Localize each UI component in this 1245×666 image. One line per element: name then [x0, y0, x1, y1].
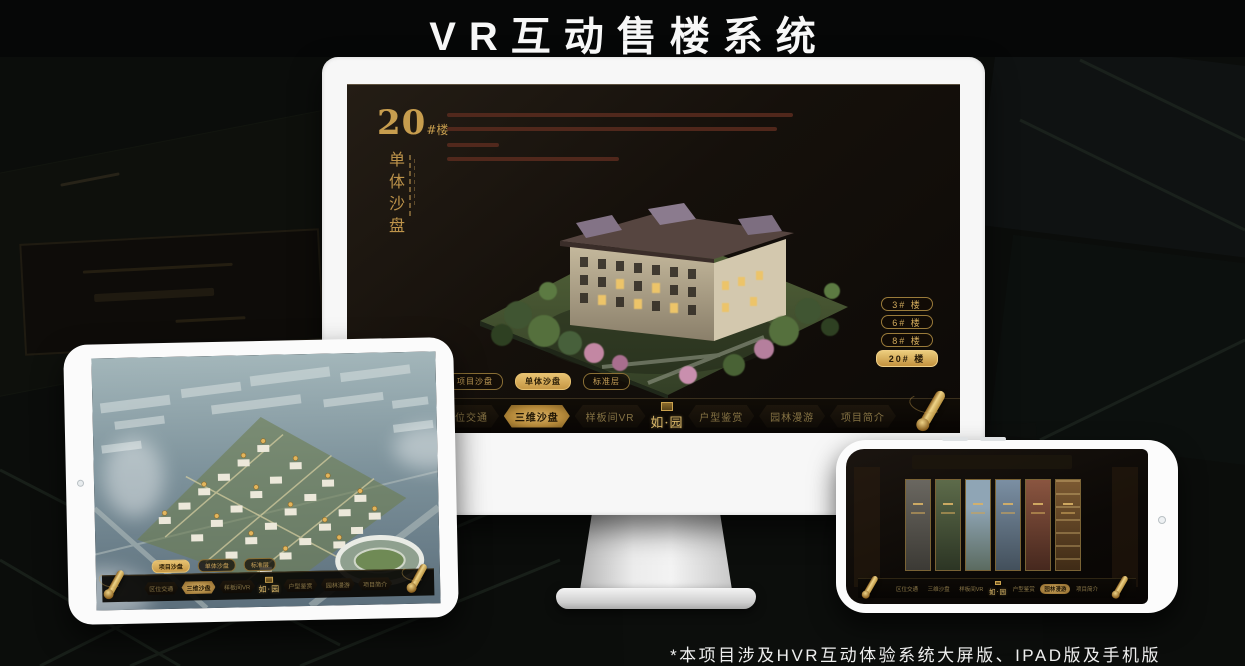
nav-item-floorplan-gallery[interactable]: 户型鉴赏 [1009, 584, 1039, 594]
nav-item-garden-roam[interactable]: 园林漫游 [321, 578, 355, 592]
stage: VR互动售楼系统 *本项目涉及HVR互动体验系统大屏版、IPAD版及手机版 20… [0, 0, 1245, 666]
monitor-stand-neck [580, 512, 732, 590]
subtab-standard-floor[interactable]: 标准层 [583, 373, 630, 390]
phone-nav-bar: 区位交通 三维沙盘 样板间VR 如·园 户型鉴赏 园林漫游 项目简介 [858, 578, 1136, 598]
gallery-panel[interactable] [1025, 479, 1051, 571]
app-logo-text: 如·园 [259, 584, 281, 595]
nav-item-project-intro[interactable]: 项目简介 [1072, 584, 1102, 594]
intro-text-line [447, 113, 793, 117]
phone-volume-button [980, 437, 1006, 441]
tablet-camera-icon [77, 480, 84, 487]
building-button-6[interactable]: 6# 楼 [881, 315, 933, 329]
pergola-backdrop [912, 455, 1072, 469]
gallery-panel[interactable] [935, 479, 961, 571]
gallery-panel[interactable] [905, 479, 931, 571]
gallery-panel[interactable] [995, 479, 1021, 571]
nav-item-3d-sandtable[interactable]: 三维沙盘 [504, 405, 570, 428]
nav-item-garden-roam[interactable]: 园林漫游 [1040, 584, 1070, 594]
nav-item-showroom-vr[interactable]: 样板间VR [219, 580, 256, 594]
page-title: VR互动售楼系统 [0, 4, 1245, 62]
phone-volume-button [942, 437, 968, 441]
heading-english-trace [409, 155, 411, 219]
tablet-subtabs: 项目沙盘 单体沙盘 标准层 [152, 558, 276, 574]
doorframe-backdrop [1112, 467, 1138, 587]
monitor-subtabs: 项目沙盘 单体沙盘 标准层 [447, 373, 630, 390]
subtab-standard-floor[interactable]: 标准层 [244, 558, 276, 572]
heading-english-trace [414, 159, 415, 207]
footnote-text: *本项目涉及HVR互动体验系统大屏版、IPAD版及手机版 [670, 641, 1161, 666]
tablet-device: 项目沙盘 单体沙盘 标准层 区位交通 三维沙盘 样板间VR 如·园 户型鉴赏 园… [63, 337, 459, 625]
nav-item-showroom-vr[interactable]: 样板间VR [955, 584, 987, 594]
nav-item-showroom-vr[interactable]: 样板间VR [575, 405, 646, 428]
subtab-single-sandtable[interactable]: 单体沙盘 [515, 373, 571, 390]
app-logo-text: 如·园 [989, 586, 1007, 596]
subtab-single-sandtable[interactable]: 单体沙盘 [198, 559, 236, 573]
building-heading: 20#楼 [377, 103, 448, 143]
nav-item-floorplan-gallery[interactable]: 户型鉴赏 [283, 578, 317, 592]
subtab-project-sandtable[interactable]: 项目沙盘 [447, 373, 503, 390]
subtab-project-sandtable[interactable]: 项目沙盘 [152, 560, 190, 574]
nav-item-garden-roam[interactable]: 园林漫游 [759, 405, 825, 428]
building-heading-caption: 单体沙盘 [383, 151, 407, 239]
nav-item-project-intro[interactable]: 项目简介 [830, 405, 896, 428]
building-3d-render [452, 131, 862, 399]
nav-item-project-intro[interactable]: 项目简介 [358, 577, 392, 591]
monitor-stand-base [556, 588, 756, 609]
nav-item-floorplan-gallery[interactable]: 户型鉴赏 [688, 405, 754, 428]
nav-item-3d-sandtable[interactable]: 三维沙盘 [181, 580, 215, 594]
building-button-3[interactable]: 3# 楼 [881, 297, 933, 311]
nav-item-3d-sandtable[interactable]: 三维沙盘 [924, 584, 954, 594]
building-button-8[interactable]: 8# 楼 [881, 333, 933, 347]
gallery-panel[interactable] [965, 479, 991, 571]
tablet-screen: 项目沙盘 单体沙盘 标准层 区位交通 三维沙盘 样板间VR 如·园 户型鉴赏 园… [91, 351, 440, 610]
nav-item-location-traffic[interactable]: 区位交通 [144, 581, 178, 595]
phone-screen: 区位交通 三维沙盘 样板间VR 如·园 户型鉴赏 园林漫游 项目简介 [846, 449, 1148, 604]
app-logo: 如·园 [650, 402, 683, 431]
seal-logo-icon [265, 577, 273, 583]
seal-logo-icon [661, 402, 673, 411]
gallery-panel[interactable] [1055, 479, 1081, 571]
phone-device: 区位交通 三维沙盘 样板间VR 如·园 户型鉴赏 园林漫游 项目简介 [836, 440, 1178, 613]
seal-logo-icon [995, 581, 1001, 585]
phone-camera-icon [1158, 516, 1166, 524]
app-logo: 如·园 [258, 577, 280, 595]
building-button-20[interactable]: 20# 楼 [876, 350, 938, 367]
app-logo-text: 如·园 [650, 412, 683, 431]
nav-item-location-traffic[interactable]: 区位交通 [892, 584, 922, 594]
doorframe-backdrop [854, 467, 880, 587]
app-logo: 如·园 [989, 581, 1007, 596]
